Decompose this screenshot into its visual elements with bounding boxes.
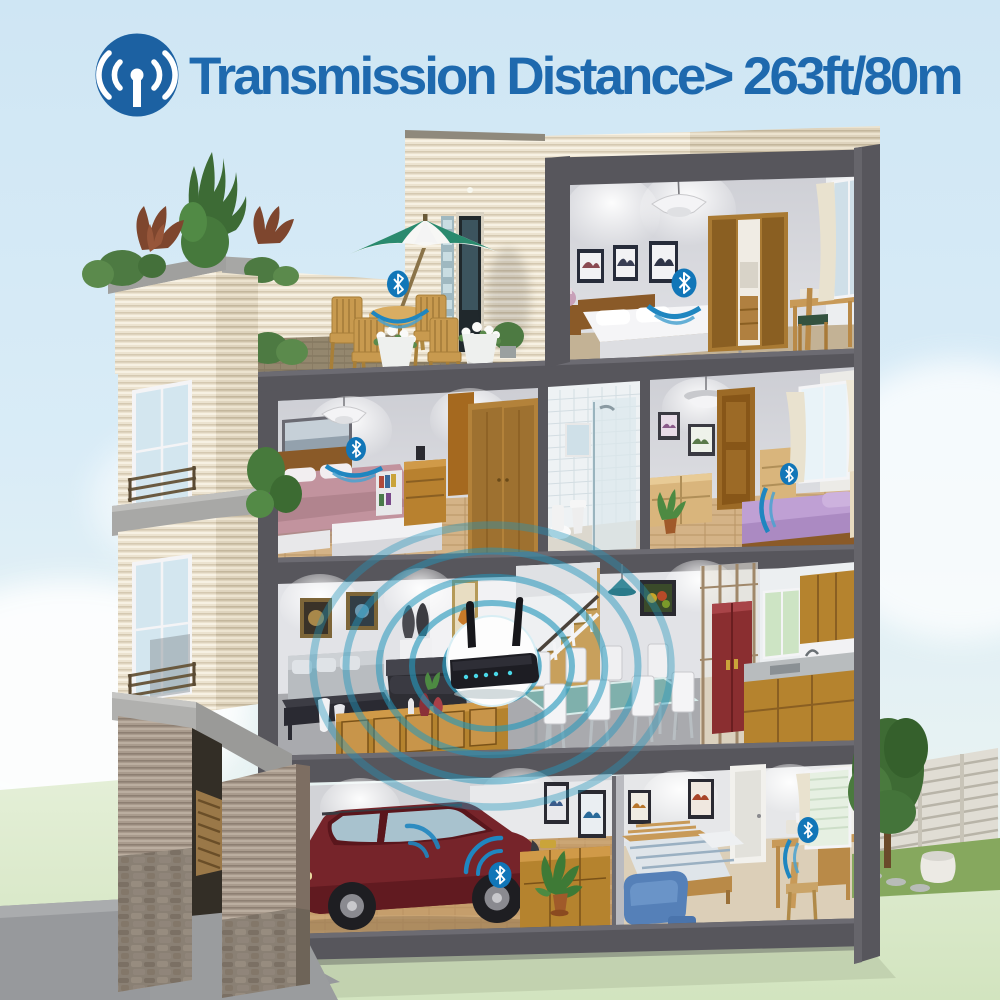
svg-text:Transmission Distance> 263ft/8: Transmission Distance> 263ft/80m	[189, 47, 961, 106]
